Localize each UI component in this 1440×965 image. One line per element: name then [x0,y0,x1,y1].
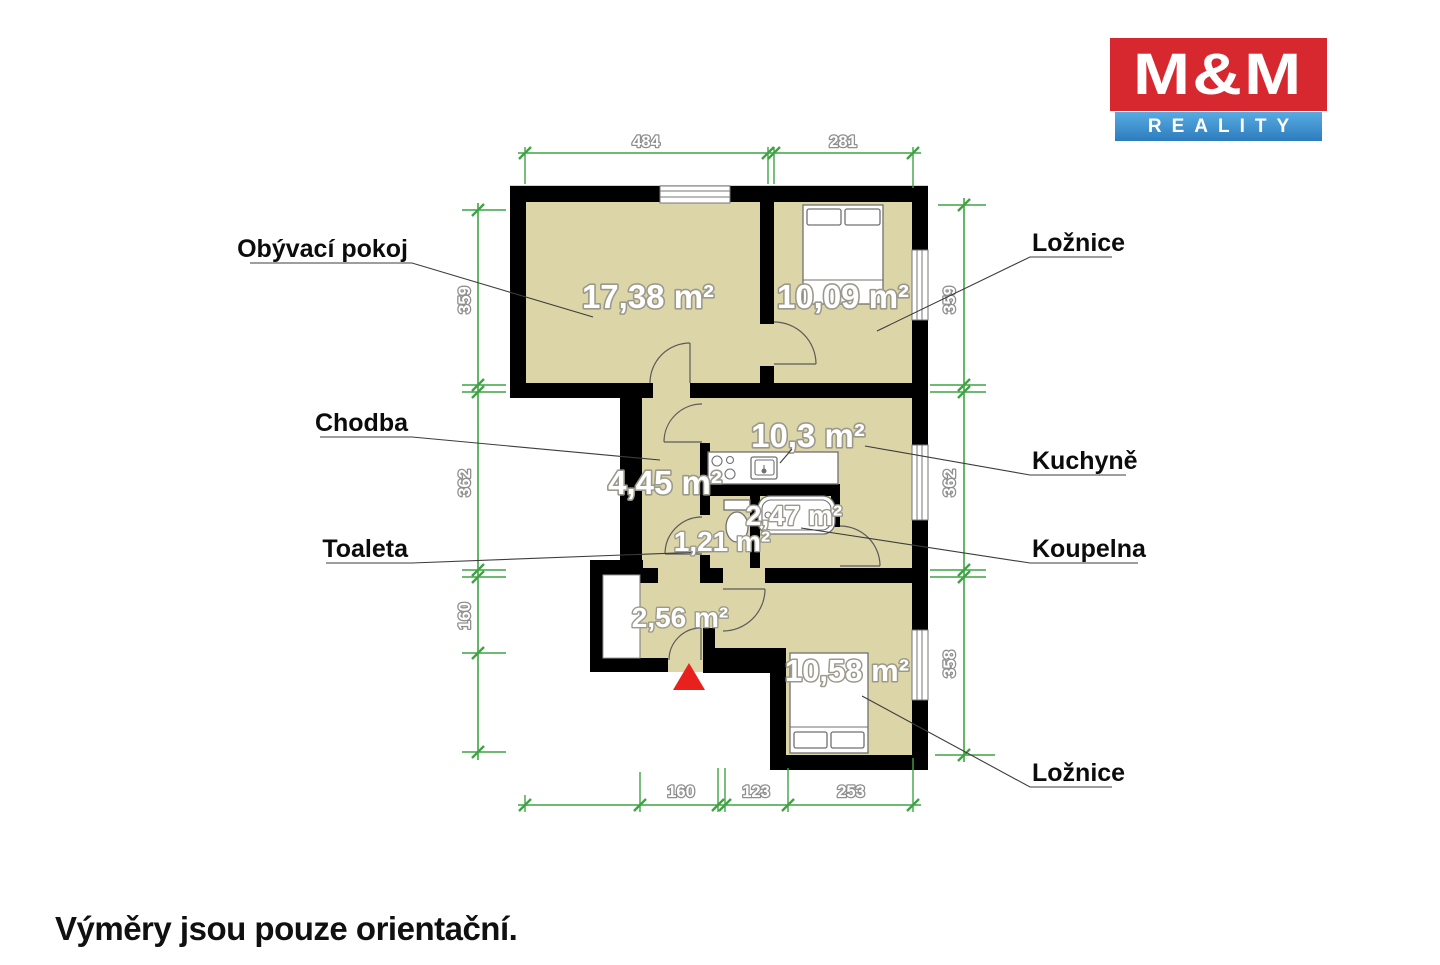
wall-segment [700,568,723,583]
area-living: 17,38 m² [582,278,714,315]
dim-bottom-3: 253 [837,783,865,801]
logo-mm-box: M&M [1110,38,1327,111]
svg-text:Kuchyně: Kuchyně [1032,447,1138,475]
area-bedroom-bottom: 10,58 m² [785,653,909,688]
floor-plan: 484 281 359 362 160 359 362 358 160 123 … [0,0,1440,960]
dim-bottom-1: 160 [667,783,695,801]
wall-segment [690,383,928,398]
svg-text:Koupelna: Koupelna [1032,535,1147,563]
dim-left-3: 160 [456,602,474,630]
logo-reality-bar: REALITY [1115,112,1322,141]
wall-segment [765,568,928,583]
area-hallway: 4,45 m² [608,464,722,501]
dim-top-2: 281 [829,133,857,151]
area-toilet: 1,21 m² [674,526,771,557]
area-bedroom-top: 10,09 m² [777,278,909,315]
wall-segment [770,755,928,770]
dim-left-1: 359 [456,286,474,314]
svg-text:Obývací pokoj: Obývací pokoj [237,235,408,263]
wall-segment [590,560,603,672]
wall-segment [770,648,786,770]
disclaimer-text: Výměry jsou pouze orientační. [55,910,517,948]
wall-segment [590,658,668,672]
svg-text:Ložnice: Ložnice [1032,759,1125,787]
window-bedroom-right [912,250,928,320]
wall-segment [760,202,774,324]
dim-left-2: 362 [456,469,474,497]
wall-segment [510,186,526,398]
window-bedroom2-right [912,630,928,700]
kitchen-counter [708,452,838,484]
dim-bottom-2: 123 [742,783,770,801]
logo-reality-text: REALITY [1138,116,1299,138]
wall-segment [760,366,774,383]
window-living-top [660,186,730,203]
svg-text:Toaleta: Toaleta [322,535,409,563]
dim-right-1: 359 [941,286,959,314]
mm-reality-logo: M&M REALITY [1110,38,1327,141]
dim-top-1: 484 [632,133,660,151]
dim-right-3: 358 [941,650,959,678]
area-entry: 2,56 m² [632,602,729,633]
label-hallway: Chodba [315,409,660,460]
svg-text:Chodba: Chodba [315,409,409,437]
dim-right-2: 362 [941,469,959,497]
wall-segment [510,383,653,398]
area-kitchen: 10,3 m² [751,417,865,454]
logo-mm-text: M&M [1133,41,1304,108]
svg-text:Ložnice: Ložnice [1032,229,1125,257]
